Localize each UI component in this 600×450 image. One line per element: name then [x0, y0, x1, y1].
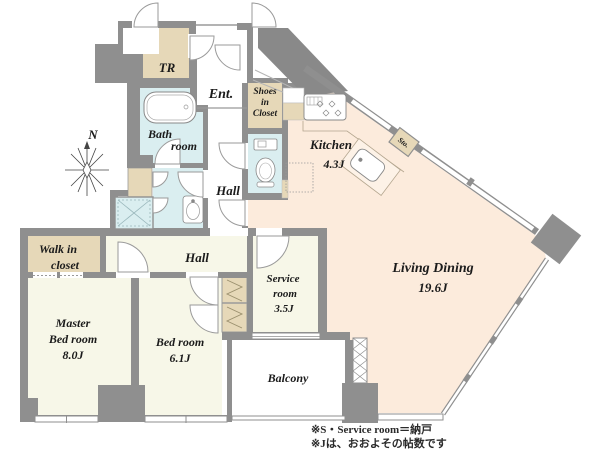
master-bedroom-label-2: Bed room [48, 332, 97, 346]
kitchen-area: 4.3J [323, 157, 346, 171]
balcony-railing [232, 416, 345, 420]
bedroom-closet [222, 277, 247, 332]
stove-fixture [304, 94, 346, 120]
bedroom-area: 6.1J [170, 351, 192, 365]
footnote-line-2: ※Jは、おおよその帖数です [311, 436, 447, 450]
compass-north-icon [65, 141, 109, 196]
hall-upper-label: Hall [215, 183, 240, 198]
hatched-column [353, 338, 367, 383]
walk-in-closet-label-1: Walk in [39, 242, 77, 256]
walk-in-closet-label-2: closet [51, 258, 80, 272]
living-dining-area: 19.6J [418, 280, 448, 295]
shoes-closet-label-3: Closet [253, 109, 278, 119]
hall-lower-label: Hall [184, 250, 209, 265]
bathroom-label-2: room [171, 139, 197, 153]
floor-plan: Sto. [0, 0, 600, 450]
master-bedroom-area: 8.0J [63, 348, 85, 362]
door-main-entrance [252, 3, 276, 27]
footnote-line-1: ※S・Service room＝納戸 [311, 422, 432, 436]
service-room-label-1: Service [267, 273, 300, 285]
service-room-label-2: room [273, 288, 297, 300]
bedroom-label: Bed room [155, 335, 204, 349]
window-service-balcony [252, 333, 320, 339]
washroom-cabinet [128, 168, 152, 197]
door-hall-living [219, 200, 245, 226]
shoes-closet-label-2: in [261, 98, 269, 108]
window-living-south [378, 414, 443, 420]
kitchen-counter [283, 103, 304, 120]
floor-plan-drawing: Sto. [0, 0, 600, 450]
tr-label: TR [159, 60, 176, 75]
bathroom-label-1: Bath [147, 127, 172, 141]
kitchen-label: Kitchen [309, 137, 352, 152]
shoes-closet-label-1: Shoes [253, 87, 277, 97]
living-dining-label: Living Dining [391, 261, 473, 276]
pillar-balcony-right [342, 383, 378, 423]
door-toilet [219, 143, 245, 169]
service-room-area: 3.5J [273, 303, 294, 315]
door-tr-exterior [134, 3, 158, 27]
master-bedroom-label-1: Master [55, 316, 91, 330]
compass-north-label: N [87, 127, 98, 142]
balcony-label: Balcony [267, 371, 309, 385]
entrance-label: Ent. [208, 87, 234, 102]
tr-alcove [123, 28, 159, 54]
